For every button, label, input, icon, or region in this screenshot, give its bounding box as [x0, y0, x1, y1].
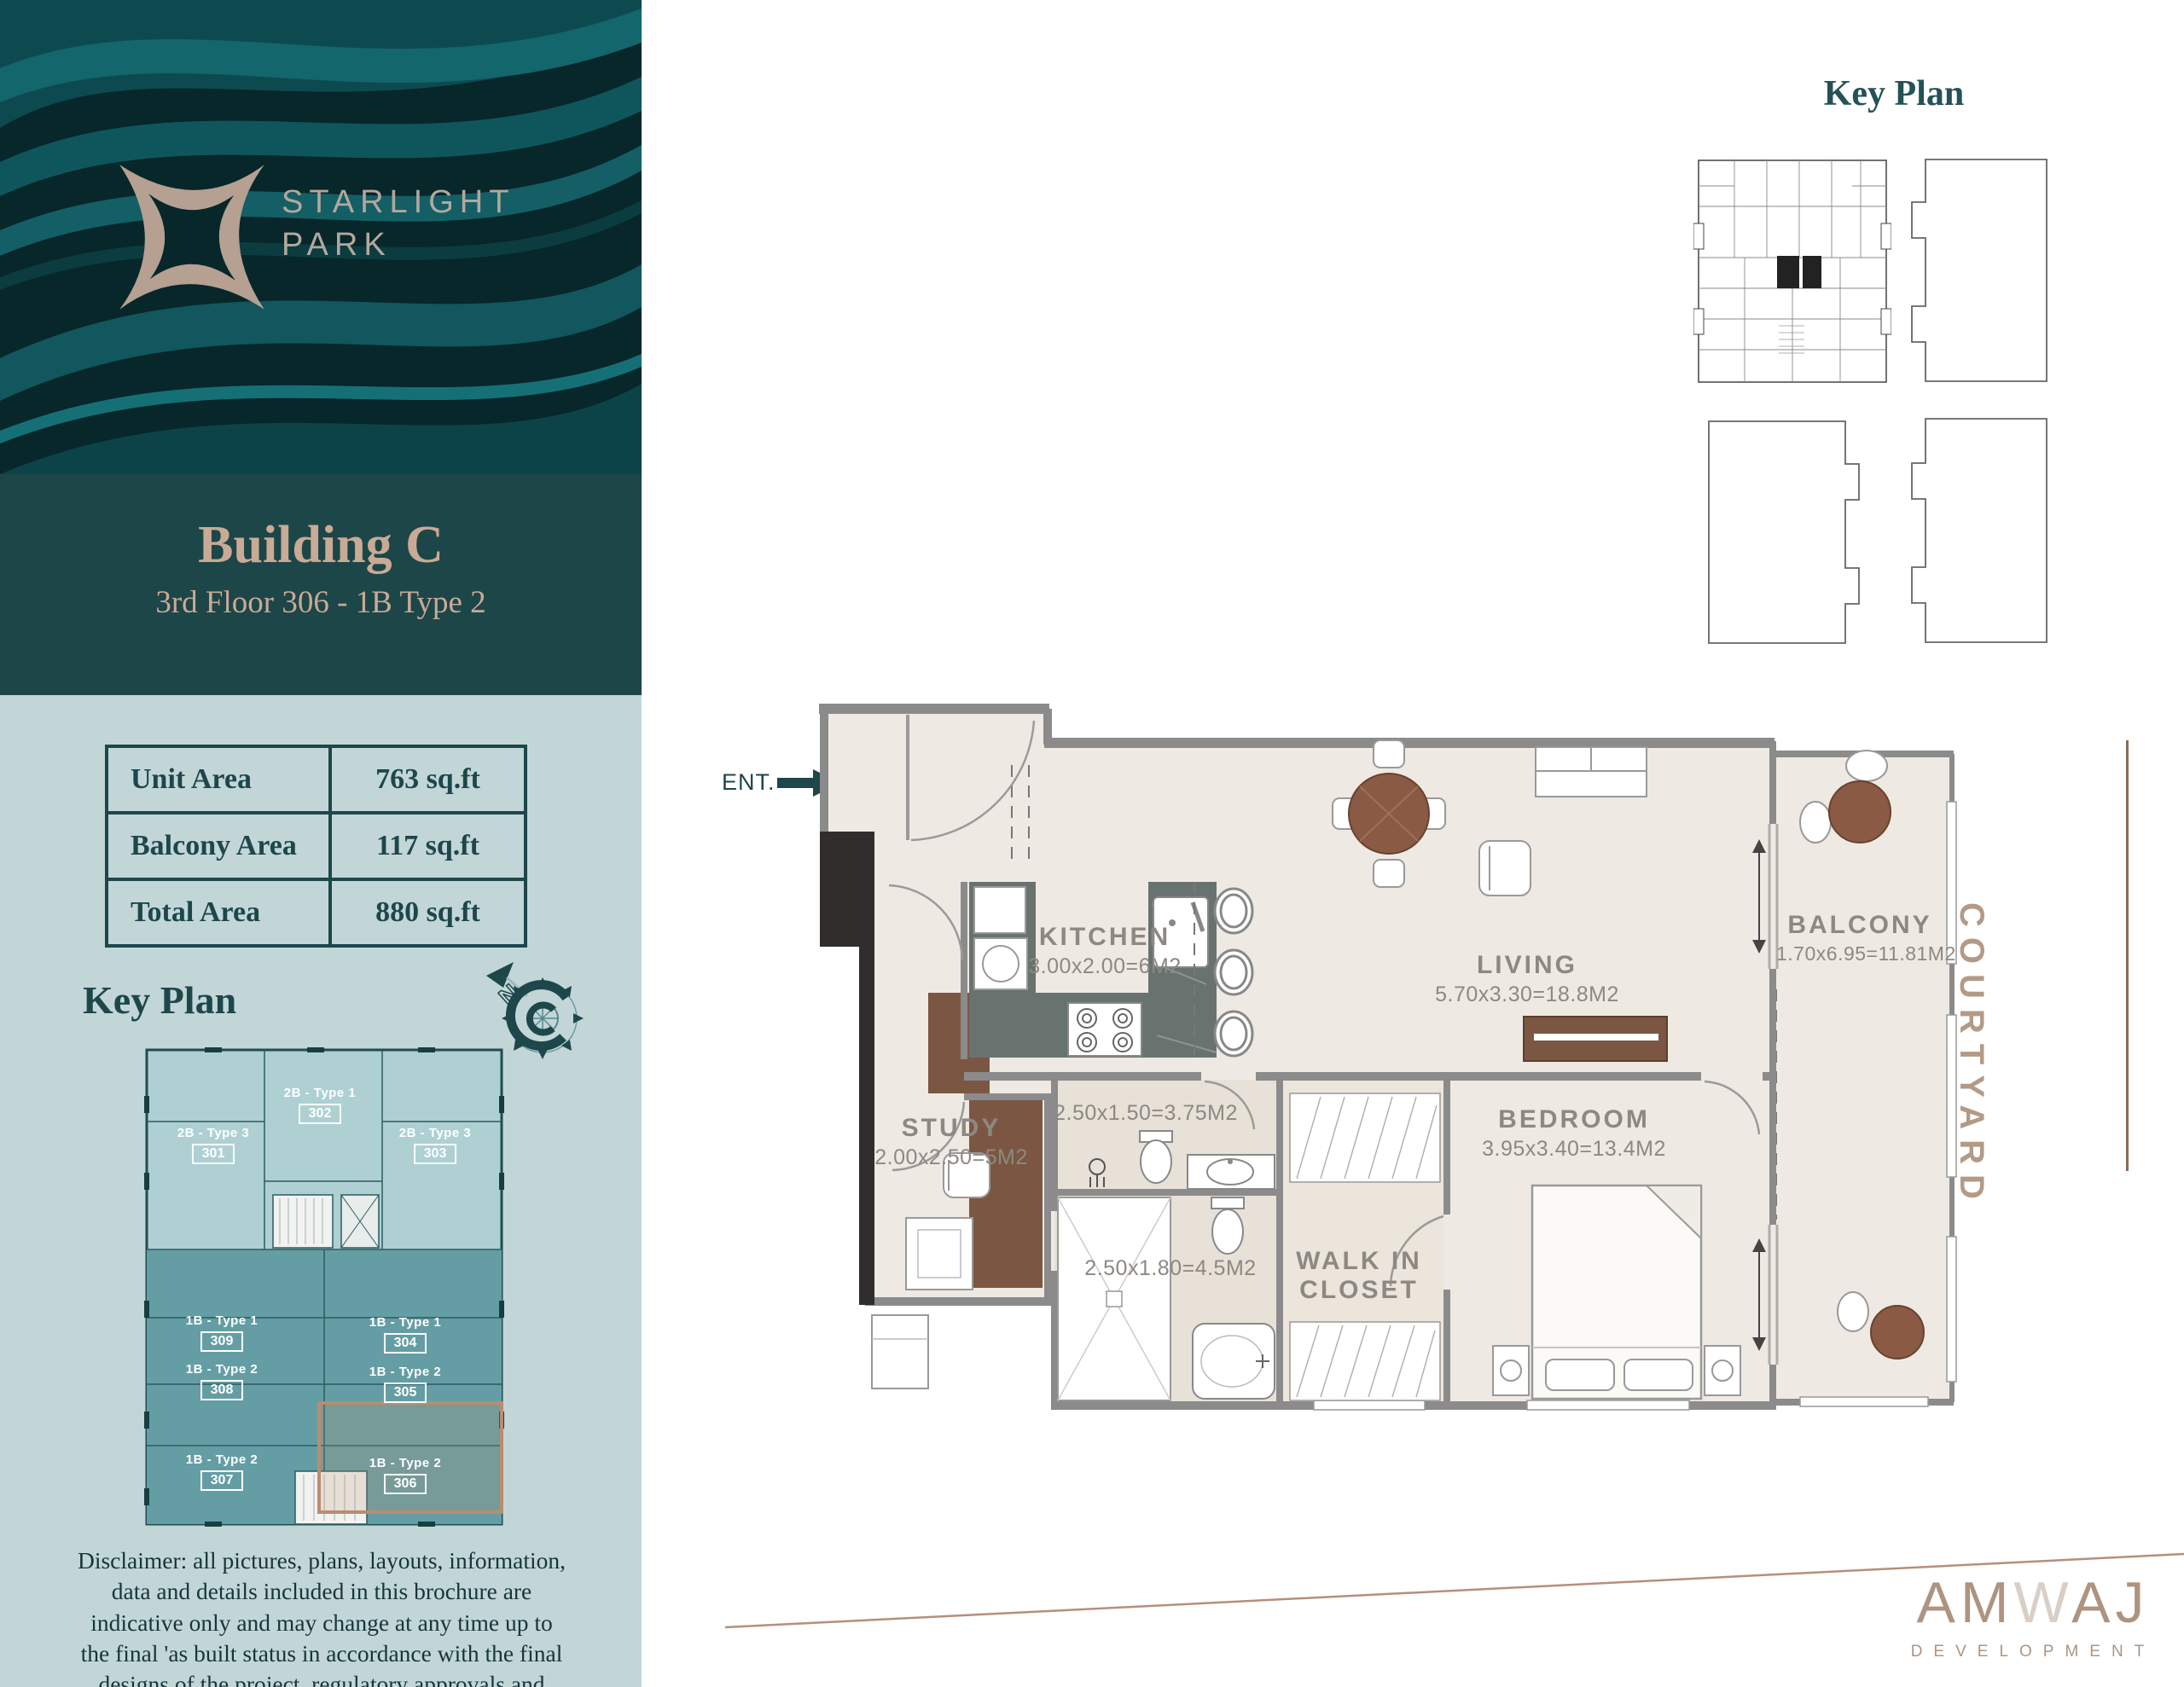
area-row-value: 763 sq.ft: [330, 746, 526, 813]
table-row: Balcony Area 117 sq.ft: [107, 813, 526, 879]
tv-console: [1536, 747, 1647, 797]
keyplan-heading-left: Key Plan: [83, 977, 236, 1023]
disclaimer-text: Disclaimer: all pictures, plans, layouts…: [75, 1545, 568, 1687]
armchair: [1479, 841, 1531, 896]
page-subtitle: 3rd Floor 306 - 1B Type 2: [0, 584, 642, 621]
shower-tray: [1058, 1197, 1170, 1400]
keyplan-unit-304: 1B - Type 1 304: [346, 1315, 465, 1354]
developer-name: AMWAJ: [1901, 1569, 2165, 1636]
keyplan-building-a-detailed: [1693, 155, 1891, 387]
stove-icon: [1068, 1003, 1141, 1056]
bath-top-dims-label: 2.50x1.50=3.75M2: [1048, 1099, 1244, 1126]
bed: [1532, 1186, 1701, 1399]
keyplan-building-b-outline: [1905, 156, 2065, 385]
keyplan-map: 2B - Type 3 301 2B - Type 1 302 2B - Typ…: [136, 1045, 512, 1531]
bar-stools: [1215, 889, 1252, 1056]
bath-bottom-dims-label: 2.50x1.80=4.5M2: [1077, 1254, 1264, 1281]
keyplan-unit-307: 1B - Type 2 307: [162, 1452, 282, 1491]
developer-logo: AMWAJ DEVELOPMENT: [1901, 1569, 2165, 1661]
keyplan-unit-303: 2B - Type 3 303: [375, 1126, 495, 1164]
area-table: Unit Area 763 sq.ft Balcony Area 117 sq.…: [105, 745, 527, 948]
logo-line2: PARK: [282, 223, 514, 266]
area-row-value: 117 sq.ft: [330, 813, 526, 879]
area-row-value: 880 sq.ft: [330, 879, 526, 946]
sideboard: [1524, 1017, 1667, 1061]
keyplan-unit-308: 1B - Type 2 308: [162, 1362, 282, 1400]
area-row-label: Balcony Area: [107, 813, 330, 879]
table-row: Unit Area 763 sq.ft: [107, 746, 526, 813]
kitchen-label: KITCHEN 3.00x2.00=6M2: [1007, 923, 1203, 979]
table-row: Total Area 880 sq.ft: [107, 879, 526, 946]
page-title: Building C: [0, 515, 642, 576]
service-shaft: [872, 1315, 928, 1388]
developer-tagline: DEVELOPMENT: [1901, 1643, 2165, 1661]
area-row-label: Total Area: [107, 879, 330, 946]
courtyard-label: COURTYARD: [1952, 902, 1990, 1209]
living-label: LIVING 5.70x3.30=18.8M2: [1416, 951, 1638, 1007]
starlight-star-icon: [90, 135, 294, 339]
keyplan-building-d-outline: [1905, 415, 2065, 646]
toilet-bottom: [1211, 1197, 1244, 1254]
dark-walls: [820, 832, 874, 1305]
area-row-label: Unit Area: [107, 746, 330, 813]
bathtub: [1193, 1324, 1275, 1399]
keyplan-building-c-outline: [1700, 418, 1866, 646]
keyplan-heading-right: Key Plan: [1774, 73, 2013, 114]
sidebar: STARLIGHT PARK Building C 3rd Floor 306 …: [0, 0, 642, 1687]
keyplan-unit-306: 1B - Type 2 306: [346, 1456, 465, 1494]
title-panel: Building C 3rd Floor 306 - 1B Type 2: [0, 474, 642, 695]
balcony-label: BALCONY 1.70x6.95=11.81M2: [1776, 911, 1943, 965]
study-label: STUDY 2.00x2.50=5M2: [866, 1114, 1037, 1170]
logo-line1: STARLIGHT: [282, 181, 514, 223]
hero-photo: STARLIGHT PARK: [0, 0, 642, 474]
floorplan-graphic: [717, 689, 2047, 1423]
keyplan-unit-302: 2B - Type 1 302: [260, 1086, 380, 1124]
logo-wordmark: STARLIGHT PARK: [282, 181, 514, 266]
keyplan-unit-305: 1B - Type 2 305: [346, 1365, 465, 1403]
bedroom-label: BEDROOM 3.95x3.40=13.4M2: [1476, 1105, 1672, 1162]
courtyard-divider-line: [2126, 740, 2129, 1171]
walk-in-closet-label: WALK IN CLOSET: [1287, 1247, 1432, 1305]
vanity-sink-top: [1188, 1155, 1275, 1189]
logo-row: STARLIGHT PARK: [0, 128, 642, 350]
brochure-page: STARLIGHT PARK Building C 3rd Floor 306 …: [0, 0, 2184, 1687]
keyplan-unit-301: 2B - Type 3 301: [154, 1126, 273, 1164]
toilet-top: [1140, 1131, 1172, 1183]
stylized-w: W: [2013, 1570, 2071, 1635]
keyplan-unit-309: 1B - Type 1 309: [162, 1313, 282, 1352]
